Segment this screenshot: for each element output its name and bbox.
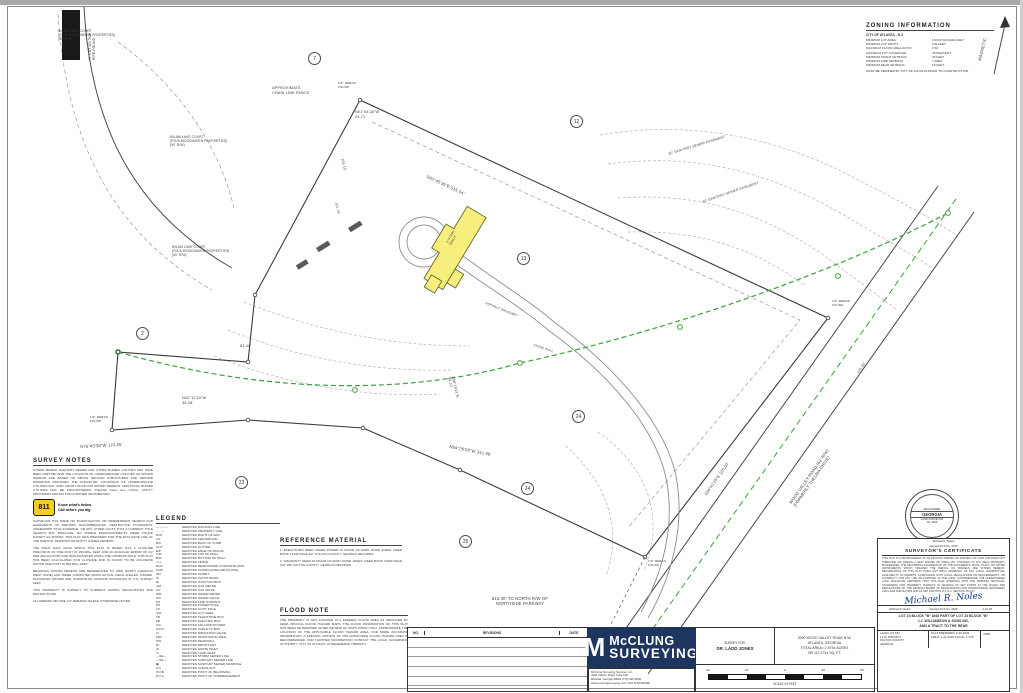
drawing-label: N01°04'28"W 24.71' bbox=[355, 110, 379, 119]
location-row: LAND LOT 18217TH DISTRICTFULTON COUNTYGE… bbox=[878, 630, 1009, 648]
zoning-information: ZONING INFORMATION CITY OF ATLANTA - R-3… bbox=[866, 23, 994, 73]
zoning-row: MINIMUM REAR SETBACK: 15 FEET bbox=[866, 63, 994, 67]
firm-address-line: www.mcclungsurveying.com COA #LSF000498 bbox=[591, 682, 691, 686]
site-address-line: OR 112,174± SQ. FT. bbox=[808, 651, 841, 656]
logo-m-icon: M bbox=[584, 636, 606, 659]
lot-number-badge: 2 bbox=[136, 327, 149, 340]
company-logo: M McCLUNG SURVEYING bbox=[587, 627, 695, 668]
zoning-rows: MINIMUM LOT AREA: 18,000 SQUARE FEET MIN… bbox=[866, 38, 994, 67]
flood-note: FLOOD NOTE THE PROPERTY IS NOT LOCATED I… bbox=[280, 608, 408, 646]
job-number-cell: JOB# bbox=[980, 631, 1009, 648]
reference-title: REFERENCE MATERIAL bbox=[280, 538, 402, 546]
legend-symbol: P.O.C. bbox=[156, 675, 182, 679]
legend-description: DENOTES POINT OF COMMENCEMENT bbox=[182, 675, 240, 679]
drawing-label: 1/2" REBAR FOUND bbox=[832, 300, 850, 307]
survey-for-cell: SURVEY FOR: DR. LADD JONES bbox=[695, 627, 775, 665]
surveyor-seal: REGISTERED GEORGIA LAND SURVEYOR No. 264… bbox=[905, 489, 959, 543]
drawing-label: 1/2" REBAR FOUND bbox=[338, 82, 356, 89]
survey-for-label: SURVEY FOR: bbox=[724, 641, 746, 645]
certificate-pre-reg: Georgia PLS No. 2646 bbox=[878, 545, 1009, 549]
revisions-col-revisions: REVISIONS bbox=[425, 631, 560, 635]
seal-number: No. 2646 bbox=[927, 521, 938, 524]
zoning-row-label: MINIMUM REAR SETBACK: bbox=[866, 63, 932, 67]
scale-tick-labels: 30' 15' 0 30' 60' bbox=[708, 668, 862, 674]
survey-note-paragraph: THE FIELD DATA UPON WHICH THIS PLAT IS B… bbox=[33, 546, 153, 566]
lot-description: LOT 23 BLOCK "B" AND PART OF LOT 24 BLOC… bbox=[878, 612, 1009, 630]
certificate-date: 2-21-25 bbox=[965, 606, 1009, 612]
graphic-scale: 30' 15' 0 30' 60' SCALE IN FEET bbox=[695, 665, 875, 692]
flood-note-text: THE PROPERTY IS NOT LOCATED IN A FEDERAL… bbox=[280, 618, 408, 646]
certificate-title: SURVEYOR'S CERTIFICATE bbox=[882, 549, 1005, 556]
drawing-label: MILAM LAKE COURT (F/K/A WOODHAVEN PROPER… bbox=[172, 246, 229, 258]
scale-tick: 30' bbox=[822, 668, 826, 672]
scale-tick: 0 bbox=[784, 668, 786, 672]
lot-number-badge: 12 bbox=[570, 115, 583, 128]
zoning-jurisdiction: CITY OF ATLANTA - R-3 bbox=[866, 33, 994, 37]
811-tagline-2: Call before you dig. bbox=[58, 508, 92, 512]
client-name: DR. LADD JONES bbox=[716, 646, 753, 651]
location-line: GEORGIA bbox=[880, 643, 926, 647]
plat-dates: PLAT PREPARED: 2-25-2025FIELD: 2-21-2025… bbox=[929, 631, 980, 648]
surveyor-certificate: Michael R. Noles Georgia PLS No. 2646 SU… bbox=[877, 538, 1010, 692]
plat-date-line: FIELD: 2-21-2025 SCALE: 1"=30' bbox=[931, 636, 978, 640]
reference-material: REFERENCE MATERIAL 1. EXECUTOR'S DEED UN… bbox=[280, 538, 402, 570]
flood-note-title: FLOOD NOTE bbox=[280, 608, 408, 616]
site-address-cell: 3200 WOOD VALLEY ROAD N.W.ATLANTA, GEORG… bbox=[775, 627, 875, 665]
scale-tick: 60' bbox=[860, 668, 864, 672]
plat-sheet: 'X' CUT ON TOP PIPE FOUNDMILAM LAKE COUR… bbox=[0, 0, 1023, 693]
revision-row bbox=[408, 657, 588, 667]
drawing-label: APPROXIMATE CHAIN LINK FENCE bbox=[272, 86, 310, 95]
north-arrow bbox=[994, 24, 1005, 74]
reference-item: 2. WARRANTY DEED IN FAVOR OF MARY ROSE J… bbox=[280, 559, 402, 567]
drawing-label: 1/2" REBAR FOUND bbox=[90, 416, 108, 423]
survey-notes: SURVEY NOTES STORM SEWER, SANITARY SEWER… bbox=[33, 458, 153, 606]
drawing-label: N02°12'24"W 39.28' bbox=[182, 396, 206, 405]
revisions-table: NO. REVISIONS DATE bbox=[407, 627, 589, 692]
surveyor-registration: Georgia PLS No. 2646 bbox=[922, 606, 966, 612]
certificate-body: THIS PLAT IS A RETRACEMENT OF AN EXISTIN… bbox=[882, 557, 1005, 593]
legend-item: P.O.C. DENOTES POINT OF COMMENCEMENT bbox=[156, 675, 280, 679]
zoning-footnote: MUST BE VERIFIED BY CITY OF ATLANTA PRIO… bbox=[866, 69, 994, 73]
survey-notes-top: STORM SEWER, SANITARY SEWER AND OTHER BU… bbox=[33, 468, 153, 496]
scale-tick: 15' bbox=[745, 668, 749, 672]
firm-address: McClung Surveying Services, Inc.4405 Can… bbox=[587, 668, 695, 692]
revision-row bbox=[408, 686, 588, 693]
811-tagline: Know what's below. Call before you dig. bbox=[58, 503, 92, 512]
lot-number-badge: 24 bbox=[572, 410, 585, 423]
drawing-label: MILAM LAKE COURT (F/K/A WOODHAVEN PROPER… bbox=[58, 30, 115, 42]
seal-inner: REGISTERED GEORGIA LAND SURVEYOR No. 264… bbox=[910, 494, 954, 538]
seal-state: GEORGIA bbox=[911, 511, 953, 518]
survey-note-paragraph: BEARINGS SHOWN HEREON ARE REFERENCED TO … bbox=[33, 569, 153, 585]
drawing-label: 63.44' bbox=[240, 344, 251, 349]
revision-row bbox=[408, 648, 588, 658]
lot-number-badge: 13 bbox=[517, 252, 530, 265]
plat-linework bbox=[0, 0, 1023, 693]
revision-row bbox=[408, 677, 588, 687]
811-tagline-1: Know what's below. bbox=[58, 503, 92, 507]
scale-caption: SCALE IN FEET bbox=[696, 682, 874, 686]
survey-note-paragraph: STORM SEWER, SANITARY SEWER AND OTHER BU… bbox=[33, 468, 153, 496]
lot-number-badge: 25 bbox=[459, 535, 472, 548]
revisions-col-no: NO. bbox=[408, 631, 425, 635]
drawing-label: 616.30' TO NORTH R/W OF NORTHSIDE PARKWA… bbox=[470, 596, 570, 606]
revisions-header: NO. REVISIONS DATE bbox=[408, 628, 588, 638]
811-logo-icon: 811 bbox=[33, 499, 55, 516]
zoning-title: ZONING INFORMATION bbox=[866, 23, 994, 31]
survey-note-paragraph: SURVEYOR HAS MADE NO INVESTIGATION OR IN… bbox=[33, 519, 153, 543]
survey-notes-title: SURVEY NOTES bbox=[33, 458, 153, 466]
revision-row bbox=[408, 667, 588, 677]
location-block: LAND LOT 18217TH DISTRICTFULTON COUNTYGE… bbox=[878, 631, 929, 648]
logo-name: McCLUNG SURVEYING bbox=[609, 635, 698, 661]
lot-number-badge: 24 bbox=[521, 482, 534, 495]
zoning-row-value: 15 FEET bbox=[932, 63, 944, 67]
survey-notes-body: SURVEYOR HAS MADE NO INVESTIGATION OR IN… bbox=[33, 519, 153, 603]
scale-tick: 30' bbox=[706, 668, 710, 672]
reference-items: 1. EXECUTOR'S DEED UNDER POWER IN FAVOR … bbox=[280, 548, 402, 567]
legend-items: ———— DENOTES BUILDING LINE —··— DENOTES … bbox=[156, 526, 280, 679]
survey-note-paragraph: ALL REBARS SET ARE 1/2" REBARS UNLESS OT… bbox=[33, 599, 153, 603]
legend-title: LEGEND bbox=[156, 516, 280, 524]
drawing-label: 1/2" REBAR FOUND bbox=[648, 560, 666, 567]
survey-note-paragraph: THIS PROPERTY IS SUBJECT TO CURRENT ZONI… bbox=[33, 588, 153, 596]
drawing-label: MILAM LAKE COURT (F/K/A WOODHAVEN PROPER… bbox=[170, 136, 227, 148]
lot-number-badge: 7 bbox=[308, 52, 321, 65]
reference-item: 1. EXECUTOR'S DEED UNDER POWER IN FAVOR … bbox=[280, 548, 402, 556]
call-811: 811 Know what's below. Call before you d… bbox=[33, 499, 153, 516]
lot-description-line: AND A TRACT TO THE REAR bbox=[878, 624, 1009, 629]
scale-bar bbox=[708, 674, 862, 680]
revision-row bbox=[408, 638, 588, 648]
lot-number-badge: 23 bbox=[235, 476, 248, 489]
legend: LEGEND ———— DENOTES BUILDING LINE —··— D… bbox=[156, 516, 280, 679]
logo-name-2: SURVEYING bbox=[609, 647, 698, 661]
